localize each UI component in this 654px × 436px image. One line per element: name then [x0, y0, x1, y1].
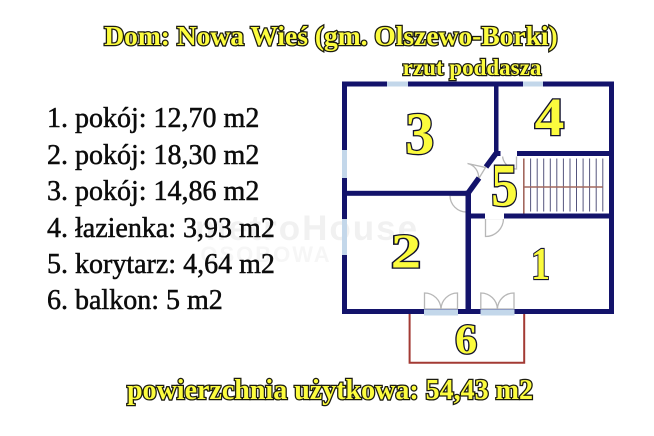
svg-text:6. balkon: 5 m2: 6. balkon: 5 m2: [47, 285, 223, 316]
svg-text:rzut poddasza: rzut poddasza: [403, 55, 542, 80]
svg-text:4: 4: [535, 88, 565, 148]
svg-text:1. pokój: 12,70 m2: 1. pokój: 12,70 m2: [47, 103, 259, 134]
svg-text:2: 2: [391, 224, 421, 278]
svg-text:Dom: Nowa Wieś (gm. Olszewo-Bo: Dom: Nowa Wieś (gm. Olszewo-Borki): [104, 20, 557, 51]
svg-text:6: 6: [455, 317, 477, 363]
svg-text:5: 5: [491, 153, 518, 220]
svg-text:4. łazienka: 3,93 m2: 4. łazienka: 3,93 m2: [47, 213, 275, 244]
svg-text:2. pokój: 18,30 m2: 2. pokój: 18,30 m2: [47, 140, 259, 171]
svg-text:powierzchnia użytkowa: 54,43 m: powierzchnia użytkowa: 54,43 m2: [127, 375, 533, 406]
svg-text:1: 1: [531, 239, 550, 289]
svg-text:5. korytarz: 4,64 m2: 5. korytarz: 4,64 m2: [47, 249, 275, 280]
svg-text:3: 3: [405, 101, 434, 167]
svg-text:3. pokój: 14,86 m2: 3. pokój: 14,86 m2: [47, 176, 259, 207]
